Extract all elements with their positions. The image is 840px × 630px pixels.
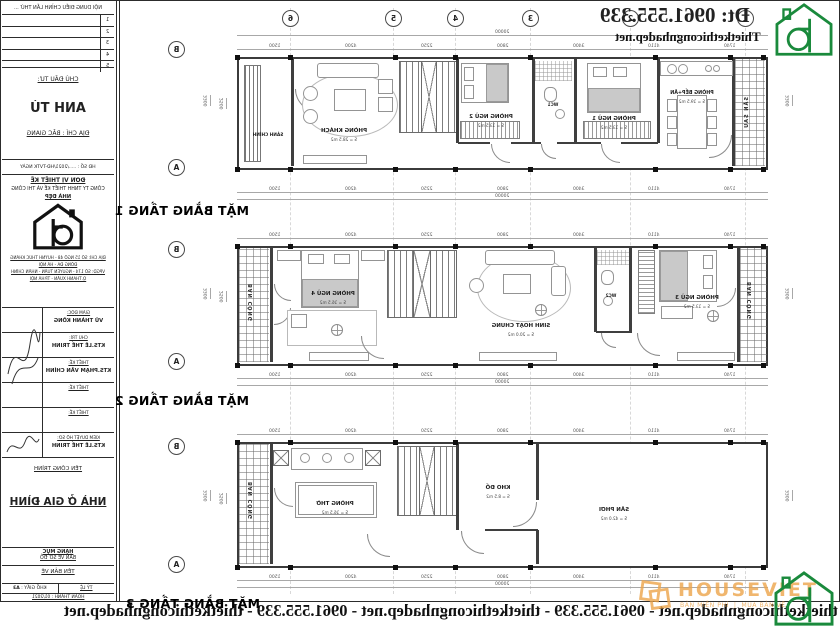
dimension-vertical: 3300 xyxy=(786,95,793,106)
column-mark xyxy=(235,565,240,570)
chair-icon xyxy=(303,86,318,101)
column-mark xyxy=(393,244,398,249)
column-mark xyxy=(235,440,240,445)
closet-icon xyxy=(361,250,385,261)
column-mark xyxy=(288,244,293,249)
dimension-vertical: 3300 xyxy=(204,95,211,106)
column-mark xyxy=(728,244,733,249)
sofa-icon xyxy=(551,266,566,296)
project-label: TÊN CÔNG TRÌNH xyxy=(2,466,114,472)
column-mark xyxy=(453,440,458,445)
investor-box: CHỦ ĐẦU TƯ: ANH TÚ ĐỊA CHỈ : BẮC GIANG xyxy=(2,68,114,160)
investor-label: CHỦ ĐẦU TƯ: xyxy=(2,76,114,83)
column-mark xyxy=(761,363,766,368)
contract-line: HĐ SỐ : ...../2021/HĐ-TVTK NGÀY xyxy=(2,160,114,175)
dimension-row: 1500420022502800340041101740 xyxy=(237,184,768,193)
dimension-value: 2250 xyxy=(421,44,432,49)
dimension-vertical: 2500 xyxy=(220,291,227,302)
door-arc xyxy=(601,333,616,348)
dimension-total: 20000 xyxy=(237,194,768,200)
scale-paper-row: KHỔ GIẤY : A3 TỶ LỆ xyxy=(2,584,114,594)
dimension-value: 2800 xyxy=(497,233,508,238)
room-label-sansau: SÂN SAU xyxy=(744,97,750,129)
grid-bubble-A: A xyxy=(168,159,185,176)
dimension-value: 1500 xyxy=(269,429,280,434)
shower-tiles-icon xyxy=(597,250,629,265)
revision-row: 2 xyxy=(2,27,114,39)
titleblock-divider-2 xyxy=(119,0,120,601)
dimension-value: 3400 xyxy=(573,429,584,434)
dimension-value: 4110 xyxy=(648,373,659,378)
dimension-value: 2250 xyxy=(421,575,432,580)
dimension-value: 3400 xyxy=(573,373,584,378)
green-house-logo-icon xyxy=(772,570,836,628)
grid-bubble-A: A xyxy=(168,556,185,573)
dimension-value: 3400 xyxy=(573,233,584,238)
sofa-icon xyxy=(317,63,379,78)
personnel-table: GIÁM ĐỐC:VŨ THÀNH KÔNG CHỦ TRÌ:KTS.LÊ TH… xyxy=(2,308,114,458)
tv-cabinet-icon xyxy=(677,352,735,361)
column-mark xyxy=(393,440,398,445)
column-mark xyxy=(653,244,658,249)
dimension-row: 1500420022502800340041101740 xyxy=(237,230,768,239)
phone-number: Đt: 0961.555.339 xyxy=(575,3,775,28)
designer-addr-4: Q.THANH XUÂN - TP.HÀ NỘI xyxy=(2,276,114,281)
closet-icon xyxy=(277,250,301,261)
armchair-icon xyxy=(291,314,307,328)
drawing-sheet: NỘI DUNG ĐIỀU CHỈNH LẦN THỨ ... 1 2 3 4 … xyxy=(0,0,840,630)
dimension-vertical: 3300 xyxy=(786,288,793,299)
houseviet-logo-icon xyxy=(636,577,674,615)
door-arc xyxy=(274,284,291,301)
door-arc xyxy=(709,135,732,158)
revision-row: 3 xyxy=(2,38,114,50)
column-mark xyxy=(728,440,733,445)
dimension-value: 1740 xyxy=(724,187,735,192)
designer-company-2: NHÀ ĐẸP xyxy=(2,194,114,200)
column-mark xyxy=(235,244,240,249)
column-mark xyxy=(653,55,658,60)
door-arc xyxy=(601,144,620,163)
dimension-value: 4200 xyxy=(345,44,356,49)
grid-bubble-6: 6 xyxy=(282,10,299,27)
dimension-value: 1740 xyxy=(724,373,735,378)
lantern-stand-icon xyxy=(273,450,289,466)
completed-row: HOÀN THÀNH : 01/2021 xyxy=(2,594,114,601)
door-arc xyxy=(513,502,537,527)
lantern-stand-icon xyxy=(365,450,381,466)
plan-title-3: MẶT BẰNG TẦNG 3 xyxy=(140,596,260,611)
category-box: HẠNG MỤC BẢN VẼ SƠ ĐỒ xyxy=(2,548,114,566)
chair-icon xyxy=(667,116,677,129)
website-header: Thietkethicongnhadep.net xyxy=(598,29,778,45)
column-mark xyxy=(235,363,240,368)
column-mark xyxy=(653,363,658,368)
door-arc xyxy=(491,144,510,163)
column-mark xyxy=(288,363,293,368)
dimension-value: 4110 xyxy=(648,187,659,192)
room-label-bancong: BAN CÔNG xyxy=(747,282,753,320)
dimension-value: 1500 xyxy=(269,373,280,378)
grid-bubble-4: 4 xyxy=(447,10,464,27)
dimension-value: 2800 xyxy=(497,373,508,378)
column-mark xyxy=(288,565,293,570)
dimension-total: 20000 xyxy=(237,380,768,386)
column-mark xyxy=(728,363,733,368)
column-mark xyxy=(288,55,293,60)
balcony-hatch xyxy=(239,248,269,362)
green-house-logo-icon xyxy=(772,2,836,58)
bed-icon xyxy=(461,63,509,103)
column-mark xyxy=(528,565,533,570)
door-arc xyxy=(637,333,660,356)
dimension-value: 1500 xyxy=(269,44,280,49)
dimension-value: 2800 xyxy=(497,44,508,49)
dimension-value: 1500 xyxy=(269,187,280,192)
designer-box: ĐƠN VỊ THIẾT KẾ CÔNG TY TNHH THIẾT KẾ VÀ… xyxy=(2,175,114,308)
column-mark xyxy=(761,244,766,249)
stair-stringer-icon xyxy=(419,446,435,516)
designer-label: ĐƠN VỊ THIẾT KẾ xyxy=(2,178,114,184)
door-arc xyxy=(274,488,293,507)
column-mark xyxy=(528,244,533,249)
dimension-value: 4200 xyxy=(345,373,356,378)
column-mark xyxy=(288,167,293,172)
grid-bubble-3: 3 xyxy=(522,10,539,27)
stair-stringer-icon xyxy=(413,250,431,318)
title-block: NỘI DUNG ĐIỀU CHỈNH LẦN THỨ ... 1 2 3 4 … xyxy=(2,2,114,601)
ceiling-fan-icon xyxy=(331,324,343,336)
shower-tiles-icon xyxy=(535,61,572,81)
dimension-vertical: 2500 xyxy=(220,98,227,109)
column-mark xyxy=(393,565,398,570)
plan-title-1: MẶT BẰNG TẦNG 1 xyxy=(125,203,249,218)
door-arc xyxy=(541,144,556,159)
dimension-value: 1500 xyxy=(269,233,280,238)
sofa-icon xyxy=(485,250,555,265)
tv-cabinet-icon xyxy=(303,155,367,164)
column-mark xyxy=(393,363,398,368)
door-arc xyxy=(461,531,484,554)
column-mark xyxy=(728,565,733,570)
door-arc xyxy=(367,534,390,557)
dimension-value: 2800 xyxy=(497,429,508,434)
dimension-value: 3400 xyxy=(573,44,584,49)
dimension-vertical: 3300 xyxy=(786,490,793,501)
dimension-value: 4110 xyxy=(648,233,659,238)
dimension-vertical: 3300 xyxy=(204,490,211,501)
signature-icon xyxy=(4,314,42,394)
revision-header: NỘI DUNG ĐIỀU CHỈNH LẦN THỨ ... xyxy=(2,2,114,15)
column-mark xyxy=(528,167,533,172)
dimension-row: 1500420022502800340041101740 xyxy=(237,426,768,435)
designer-addr-2: ĐỐNG ĐA - HÀ NỘI xyxy=(2,262,114,267)
signature-icon xyxy=(5,434,41,458)
floor-plan-2: BAN CÔNG PHÒNG NGỦ 4S = 16.5 m2 SINH HOẠ… xyxy=(237,246,768,366)
revision-row: 1 xyxy=(2,15,114,27)
column-mark xyxy=(393,55,398,60)
grid-bubble-B: B xyxy=(168,241,185,258)
dimension-value: 2250 xyxy=(421,233,432,238)
grid-bubble-B: B xyxy=(168,438,185,455)
project-box: TÊN CÔNG TRÌNH NHÀ Ở GIA ĐÌNH xyxy=(2,458,114,548)
grid-bubble-A: A xyxy=(168,353,185,370)
dimension-value: 2250 xyxy=(421,429,432,434)
column-mark xyxy=(453,167,458,172)
column-mark xyxy=(761,440,766,445)
dimension-value: 2800 xyxy=(497,187,508,192)
altar-icon xyxy=(291,448,363,470)
dimension-value: 4200 xyxy=(345,233,356,238)
tv-cabinet-icon xyxy=(479,352,557,361)
kitchen-counter-icon xyxy=(660,61,733,76)
balcony-hatch xyxy=(740,248,767,362)
floor-plan-1: SẢNH CHÍNH PHÒNG KHÁCHS = 28.5 m2 xyxy=(237,57,768,170)
tv-cabinet-icon xyxy=(309,352,369,361)
column-mark xyxy=(453,55,458,60)
chair-icon xyxy=(707,116,717,129)
designer-logo xyxy=(2,203,114,251)
designer-addr-1: ĐỊA CHỈ: SỐ 15 NGÕ 48 - HUỲNH THÚC KHÁNG xyxy=(2,255,114,260)
column-mark xyxy=(761,55,766,60)
houseviet-tagline: BẢN MIỄN PHÍ | MUA BẢN VẼ xyxy=(680,602,786,609)
column-mark xyxy=(453,244,458,249)
armchair-icon xyxy=(378,79,393,94)
dimension-value: 2250 xyxy=(421,187,432,192)
grid-bubble-B: B xyxy=(168,41,185,58)
ceiling-fan-icon xyxy=(707,310,719,322)
column-mark xyxy=(288,440,293,445)
dimension-vertical: 2500 xyxy=(220,493,227,504)
column-mark xyxy=(728,55,733,60)
coffee-table-icon xyxy=(334,89,366,111)
column-mark xyxy=(393,167,398,172)
room-label-bancong: BAN CÔNG xyxy=(248,284,254,322)
balcony-hatch xyxy=(239,444,269,564)
wardrobe-icon xyxy=(638,250,655,314)
dimension-value: 3400 xyxy=(573,575,584,580)
column-mark xyxy=(453,565,458,570)
category-label: HẠNG MỤC xyxy=(2,549,114,555)
revision-table: 1 2 3 4 5 xyxy=(2,15,114,68)
grid-bubble-5: 5 xyxy=(385,10,402,27)
dimension-value: 1740 xyxy=(724,429,735,434)
project-name: NHÀ Ở GIA ĐÌNH xyxy=(2,496,114,508)
chair-icon xyxy=(667,133,677,146)
dimension-value: 2800 xyxy=(497,575,508,580)
dimension-value: 1740 xyxy=(724,233,735,238)
room-label-bancong: BAN CÔNG xyxy=(248,482,254,520)
revision-row: 4 xyxy=(2,50,114,62)
titleblock-divider xyxy=(116,0,117,601)
dimension-value: 1500 xyxy=(269,575,280,580)
column-mark xyxy=(728,167,733,172)
column-mark xyxy=(528,55,533,60)
floor-plan-3: BAN CÔNG PHÒNG THỜS = 16.5 m2 KHO ĐỒS = … xyxy=(237,442,768,568)
category-value: BẢN VẼ SƠ ĐỒ xyxy=(2,556,114,561)
column-mark xyxy=(761,565,766,570)
dimension-value: 4200 xyxy=(345,575,356,580)
column-mark xyxy=(453,363,458,368)
dimension-value: 4200 xyxy=(345,187,356,192)
gate-hatch-icon xyxy=(244,65,261,162)
investor-name: ANH TÚ xyxy=(2,101,114,116)
personnel-row: THIẾT KẾ: xyxy=(2,408,114,433)
coffee-table-icon xyxy=(503,274,531,294)
column-mark xyxy=(528,363,533,368)
column-mark xyxy=(761,167,766,172)
dimension-row: 1500420022502800340041101740 xyxy=(237,370,768,379)
column-mark xyxy=(653,440,658,445)
designer-company: CÔNG TY TNHH THIẾT KẾ VÀ THI CÔNG xyxy=(2,187,114,192)
investor-address: ĐỊA CHỈ : BẮC GIANG xyxy=(2,130,114,137)
dimension-value: 4200 xyxy=(345,429,356,434)
column-mark xyxy=(653,565,658,570)
dimension-value: 4110 xyxy=(648,429,659,434)
dimension-vertical: 3300 xyxy=(204,288,211,299)
column-mark xyxy=(528,440,533,445)
armchair-icon xyxy=(378,97,393,112)
column-mark xyxy=(653,167,658,172)
chair-icon xyxy=(469,278,484,293)
column-mark xyxy=(235,55,240,60)
designer-addr-3: VPGD: SỐ 174 - NGUYỄN TUÂN - NHÂN CHÍNH xyxy=(2,269,114,274)
dimension-value: 2250 xyxy=(421,373,432,378)
black-house-logo-icon xyxy=(32,203,84,251)
sheet-name-label: TÊN BẢN VẼ xyxy=(2,569,114,575)
yard-hatch xyxy=(735,59,765,166)
sheet-name-box: TÊN BẢN VẼ xyxy=(2,566,114,584)
column-mark xyxy=(235,167,240,172)
stair-stringer-icon xyxy=(421,61,437,133)
dimension-value: 3400 xyxy=(573,187,584,192)
plan-title-2: MẶT BẰNG TẦNG 2 xyxy=(125,393,249,408)
